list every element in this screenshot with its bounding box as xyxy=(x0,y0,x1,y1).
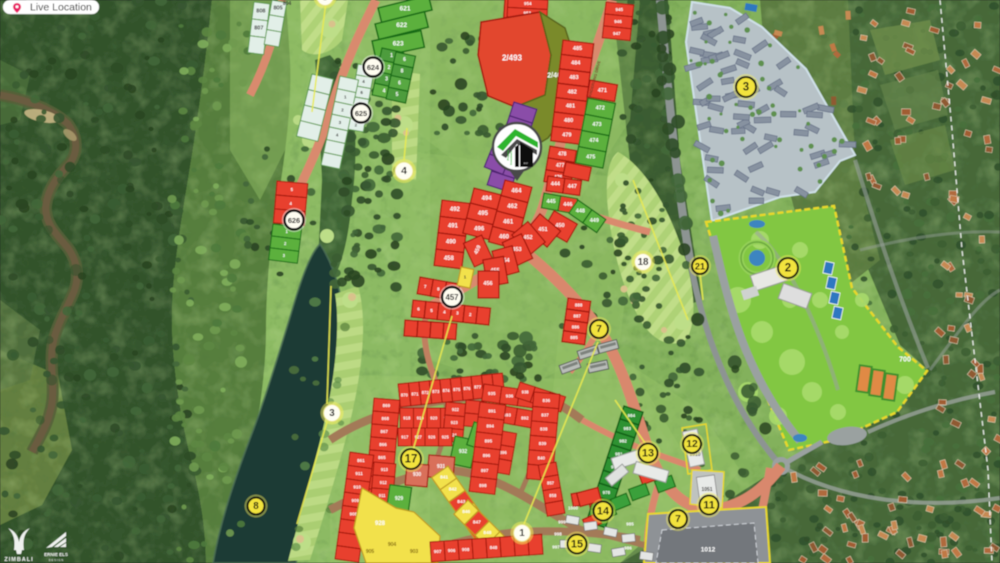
svg-text:2/493: 2/493 xyxy=(502,54,523,63)
svg-text:622: 622 xyxy=(396,22,407,29)
svg-text:2: 2 xyxy=(785,263,791,275)
svg-text:913: 913 xyxy=(381,467,389,472)
svg-text:1: 1 xyxy=(519,528,525,539)
svg-text:8: 8 xyxy=(253,501,259,512)
svg-text:954: 954 xyxy=(524,1,532,6)
svg-text:938: 938 xyxy=(522,390,530,395)
svg-text:877: 877 xyxy=(474,385,482,390)
svg-text:887: 887 xyxy=(573,313,581,318)
svg-text:Live Location: Live Location xyxy=(30,2,92,14)
svg-text:892: 892 xyxy=(521,416,529,421)
svg-text:983: 983 xyxy=(624,426,632,431)
svg-text:492: 492 xyxy=(450,207,461,213)
svg-text:2: 2 xyxy=(388,65,391,71)
svg-text:457: 457 xyxy=(445,293,458,302)
svg-text:910: 910 xyxy=(353,485,361,490)
svg-text:458: 458 xyxy=(444,256,455,262)
svg-text:947: 947 xyxy=(613,31,621,36)
svg-text:14: 14 xyxy=(597,506,609,518)
svg-text:848: 848 xyxy=(483,530,491,536)
svg-text:625: 625 xyxy=(355,109,367,118)
svg-text:906: 906 xyxy=(448,548,456,553)
svg-text:836: 836 xyxy=(543,398,551,403)
svg-text:866: 866 xyxy=(379,442,387,447)
svg-text:ZIMBALI: ZIMBALI xyxy=(4,557,33,563)
svg-text:946: 946 xyxy=(614,19,622,24)
svg-text:4: 4 xyxy=(383,88,386,94)
svg-text:870: 870 xyxy=(401,392,409,397)
svg-text:911: 911 xyxy=(355,471,363,476)
svg-text:4: 4 xyxy=(401,166,407,177)
svg-text:6: 6 xyxy=(403,57,406,63)
svg-text:472: 472 xyxy=(596,106,605,112)
svg-text:867: 867 xyxy=(380,429,388,434)
svg-text:480: 480 xyxy=(564,118,573,124)
svg-text:912: 912 xyxy=(380,480,388,485)
svg-text:5: 5 xyxy=(322,0,328,3)
svg-text:Investment: Investment xyxy=(509,151,513,165)
svg-text:982: 982 xyxy=(619,439,627,444)
svg-text:872: 872 xyxy=(422,390,430,395)
svg-text:920: 920 xyxy=(430,416,438,421)
svg-text:926: 926 xyxy=(428,435,436,440)
svg-text:456: 456 xyxy=(483,281,492,287)
svg-text:481: 481 xyxy=(566,104,575,110)
svg-text:918: 918 xyxy=(403,416,411,421)
svg-text:474: 474 xyxy=(589,138,599,144)
svg-text:869: 869 xyxy=(383,403,391,408)
svg-text:621: 621 xyxy=(400,5,411,12)
svg-text:473: 473 xyxy=(592,122,601,128)
svg-text:858: 858 xyxy=(549,493,557,498)
svg-text:871: 871 xyxy=(411,391,419,396)
svg-text:1051: 1051 xyxy=(701,487,712,493)
svg-text:21: 21 xyxy=(695,262,705,272)
svg-text:932: 932 xyxy=(459,449,468,455)
svg-text:986: 986 xyxy=(624,546,632,551)
svg-text:936: 936 xyxy=(506,394,514,399)
svg-text:491: 491 xyxy=(448,223,459,229)
svg-text:3: 3 xyxy=(385,77,388,83)
svg-text:13: 13 xyxy=(642,448,654,460)
svg-text:898: 898 xyxy=(479,483,487,488)
svg-text:846: 846 xyxy=(462,509,470,515)
svg-text:847: 847 xyxy=(473,519,481,525)
svg-text:929: 929 xyxy=(395,496,404,502)
svg-text:839: 839 xyxy=(539,441,547,446)
svg-text:886: 886 xyxy=(572,324,580,329)
svg-text:909: 909 xyxy=(352,498,360,503)
svg-text:462: 462 xyxy=(507,204,518,210)
svg-text:7: 7 xyxy=(675,514,681,525)
svg-text:3: 3 xyxy=(329,408,335,419)
svg-text:917: 917 xyxy=(401,435,409,440)
svg-text:12: 12 xyxy=(686,439,698,450)
svg-text:485: 485 xyxy=(573,46,582,52)
svg-text:876: 876 xyxy=(464,386,472,391)
svg-text:494: 494 xyxy=(482,196,493,202)
svg-text:475: 475 xyxy=(586,154,595,160)
svg-text:804: 804 xyxy=(283,1,292,7)
svg-text:861: 861 xyxy=(357,458,365,463)
svg-text:904: 904 xyxy=(388,542,397,548)
svg-text:848: 848 xyxy=(490,545,498,550)
svg-text:895: 895 xyxy=(485,438,493,443)
svg-text:999: 999 xyxy=(558,520,566,525)
svg-text:7: 7 xyxy=(596,324,602,335)
svg-text:842: 842 xyxy=(449,487,457,493)
svg-text:482: 482 xyxy=(568,89,577,95)
svg-text:837: 837 xyxy=(541,412,549,417)
svg-text:1000: 1000 xyxy=(568,506,579,511)
svg-text:478: 478 xyxy=(558,151,567,157)
svg-text:477: 477 xyxy=(556,163,565,169)
svg-text:18: 18 xyxy=(638,257,649,268)
svg-text:1: 1 xyxy=(390,53,393,59)
svg-text:17: 17 xyxy=(405,454,418,466)
svg-text:908: 908 xyxy=(462,547,470,552)
svg-text:D E S I G N: D E S I G N xyxy=(49,558,64,562)
svg-text:985: 985 xyxy=(626,522,634,527)
svg-text:11: 11 xyxy=(703,500,715,512)
svg-text:925: 925 xyxy=(442,435,450,440)
svg-text:838: 838 xyxy=(540,427,548,432)
svg-text:807: 807 xyxy=(254,25,263,31)
svg-text:ERNIE ELS: ERNIE ELS xyxy=(44,552,68,557)
svg-text:907: 907 xyxy=(434,549,442,554)
svg-text:626: 626 xyxy=(288,216,300,225)
svg-text:911: 911 xyxy=(379,493,386,498)
svg-text:5: 5 xyxy=(396,92,399,98)
svg-text:449: 449 xyxy=(590,218,599,224)
svg-text:623: 623 xyxy=(393,41,404,48)
svg-text:903: 903 xyxy=(410,549,419,555)
svg-text:945: 945 xyxy=(616,7,624,12)
svg-text:997: 997 xyxy=(552,545,560,550)
svg-text:444: 444 xyxy=(551,182,561,188)
svg-text:445: 445 xyxy=(546,199,555,205)
svg-text:3: 3 xyxy=(743,82,749,94)
svg-text:984: 984 xyxy=(628,413,636,418)
svg-text:873: 873 xyxy=(432,389,440,394)
svg-text:490: 490 xyxy=(446,240,457,246)
svg-text:885: 885 xyxy=(570,335,578,340)
svg-text:905: 905 xyxy=(366,549,375,555)
svg-text:461: 461 xyxy=(503,219,514,225)
svg-text:15: 15 xyxy=(571,539,583,551)
svg-text:922: 922 xyxy=(452,407,460,412)
svg-text:EST: EST xyxy=(524,163,529,165)
svg-text:998: 998 xyxy=(554,532,562,537)
svg-text:891: 891 xyxy=(488,409,496,414)
svg-text:874: 874 xyxy=(443,388,451,393)
svg-text:471: 471 xyxy=(598,88,607,94)
svg-text:894: 894 xyxy=(486,423,494,428)
svg-text:857: 857 xyxy=(547,480,555,485)
svg-text:447: 447 xyxy=(568,184,577,190)
svg-text:865: 865 xyxy=(378,455,386,460)
svg-text:451: 451 xyxy=(538,227,547,233)
svg-text:484: 484 xyxy=(571,61,581,67)
svg-text:896: 896 xyxy=(483,453,491,458)
svg-text:923: 923 xyxy=(451,420,459,425)
svg-text:841: 841 xyxy=(440,474,448,480)
svg-text:896: 896 xyxy=(500,450,508,455)
svg-text:808: 808 xyxy=(256,8,265,14)
svg-text:8: 8 xyxy=(401,69,404,75)
svg-text:448: 448 xyxy=(576,208,585,214)
svg-text:446: 446 xyxy=(563,202,572,208)
svg-text:495: 495 xyxy=(478,211,489,217)
svg-text:928: 928 xyxy=(375,521,386,527)
svg-text:978: 978 xyxy=(603,490,611,495)
svg-text:479: 479 xyxy=(562,132,571,138)
svg-text:868: 868 xyxy=(381,416,389,421)
svg-text:875: 875 xyxy=(453,387,461,392)
svg-text:888: 888 xyxy=(575,303,583,308)
svg-text:624: 624 xyxy=(367,63,380,72)
svg-text:483: 483 xyxy=(569,75,578,81)
svg-text:897: 897 xyxy=(481,468,489,473)
svg-text:805: 805 xyxy=(273,6,282,12)
svg-text:1012: 1012 xyxy=(701,547,716,554)
svg-text:930: 930 xyxy=(413,472,422,478)
svg-text:700: 700 xyxy=(899,357,911,364)
svg-text:935: 935 xyxy=(488,391,496,396)
svg-text:6: 6 xyxy=(398,80,401,86)
svg-text:840: 840 xyxy=(538,456,546,461)
svg-text:464: 464 xyxy=(511,188,522,194)
svg-text:496: 496 xyxy=(474,226,485,232)
